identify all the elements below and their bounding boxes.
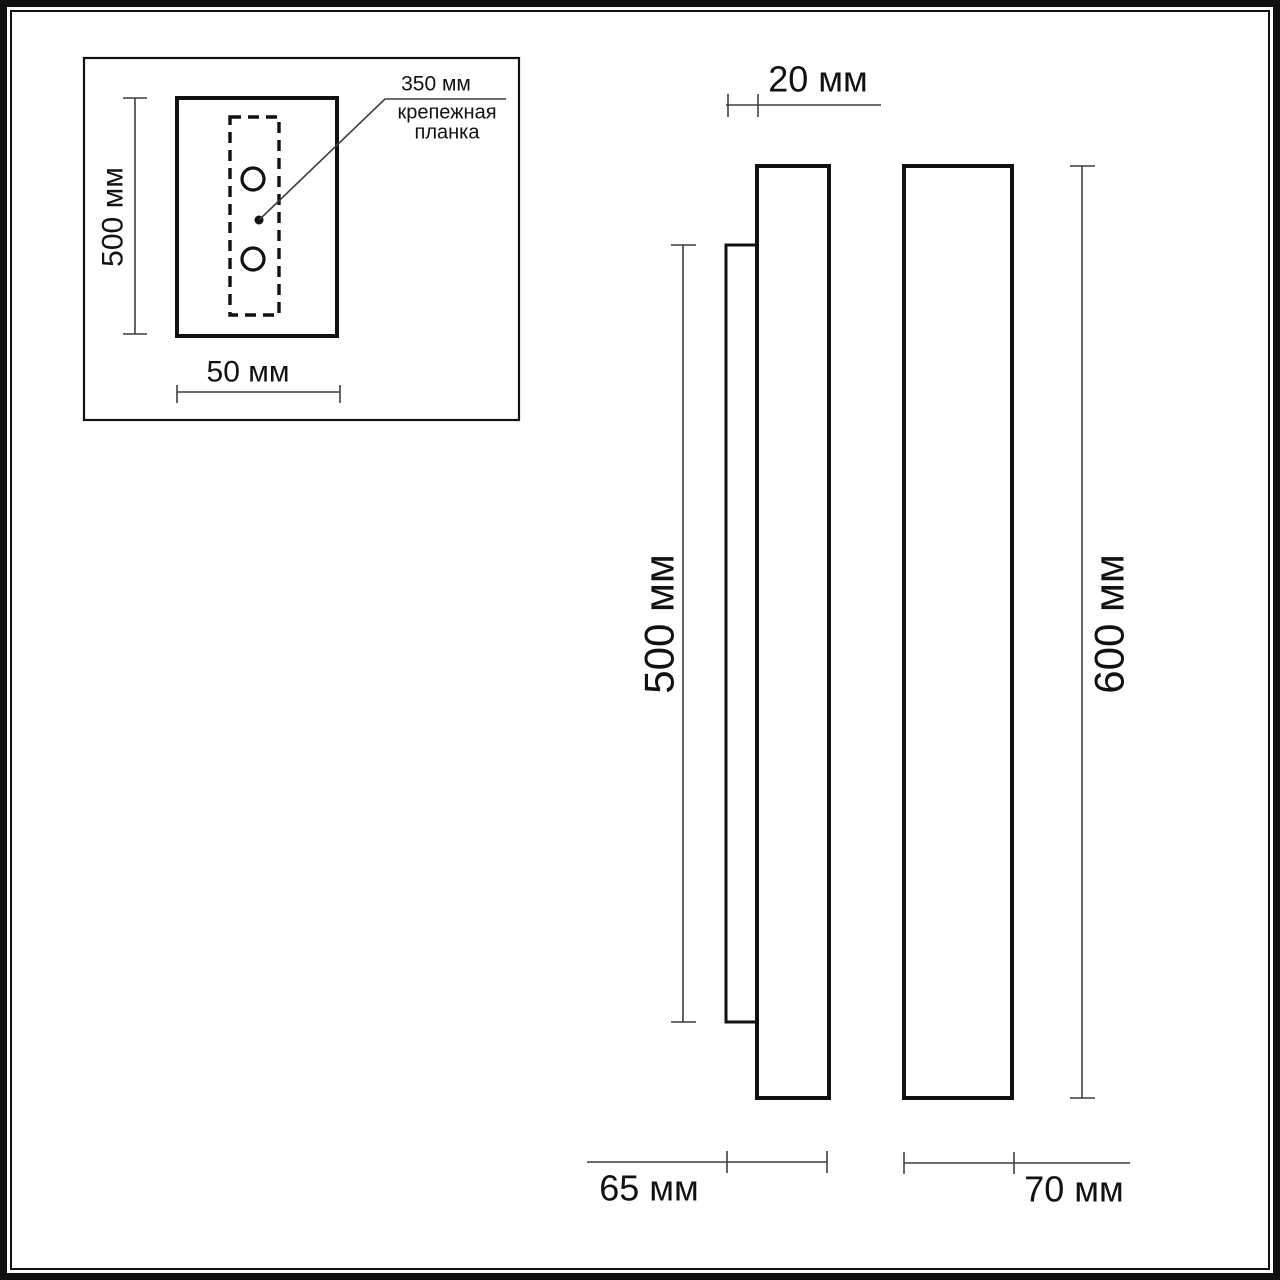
back-plate-outline (726, 245, 757, 1022)
overall-height-dim-label: 600 мм (1089, 554, 1132, 694)
overall-depth-dim-label: 65 мм (599, 1171, 699, 1208)
inset-width-dim-label: 50 мм (207, 358, 290, 389)
plate-height-dim-label: 500 мм (639, 554, 682, 694)
inset-height-dim-label: 500 мм (99, 167, 130, 267)
mounting-plate-dashed-outline (230, 117, 279, 315)
mounting-plate-caption: крепежная планка (397, 103, 496, 144)
mounting-hole-top (242, 168, 264, 190)
technical-drawing-canvas: 500 мм 50 мм 350 мм крепежная планка 20 … (0, 0, 1280, 1280)
overall-width-dim-label: 70 мм (1024, 1172, 1124, 1209)
plate-depth-dim-label: 20 мм (768, 62, 868, 99)
mounting-hole-bottom (242, 248, 264, 270)
lamp-body-side-outline (757, 166, 829, 1098)
lamp-body-front-outline (904, 166, 1012, 1098)
plate-length-dim-label: 350 мм (401, 73, 471, 94)
